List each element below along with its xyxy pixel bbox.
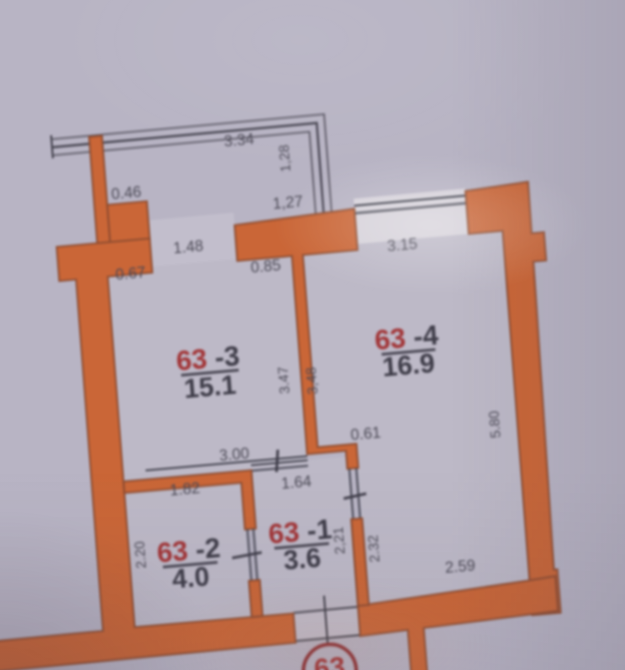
svg-text:3.47: 3.47 bbox=[274, 366, 292, 395]
svg-text:1,28: 1,28 bbox=[275, 144, 293, 173]
svg-text:3.6: 3.6 bbox=[282, 542, 322, 575]
svg-text:4.0: 4.0 bbox=[171, 561, 211, 594]
svg-text:5.80: 5.80 bbox=[485, 410, 503, 439]
svg-text:15.1: 15.1 bbox=[183, 369, 237, 404]
svg-text:0.85: 0.85 bbox=[250, 257, 281, 277]
svg-text:16.9: 16.9 bbox=[381, 348, 436, 383]
svg-text:1,27: 1,27 bbox=[272, 193, 303, 213]
svg-text:3.15: 3.15 bbox=[387, 236, 418, 256]
svg-text:0.67: 0.67 bbox=[115, 264, 146, 284]
svg-text:3.34: 3.34 bbox=[223, 131, 255, 151]
svg-text:1.64: 1.64 bbox=[281, 473, 313, 493]
svg-text:1.48: 1.48 bbox=[173, 238, 204, 258]
svg-text:2.20: 2.20 bbox=[131, 540, 149, 569]
svg-text:1.82: 1.82 bbox=[169, 480, 200, 500]
svg-text:0.46: 0.46 bbox=[111, 184, 142, 204]
svg-text:3,48: 3,48 bbox=[302, 366, 320, 395]
svg-text:3.00: 3.00 bbox=[219, 445, 250, 465]
svg-text:2.59: 2.59 bbox=[444, 557, 475, 577]
svg-text:2.32: 2.32 bbox=[364, 534, 382, 563]
svg-text:63: 63 bbox=[313, 651, 346, 670]
svg-text:0.61: 0.61 bbox=[350, 424, 381, 444]
